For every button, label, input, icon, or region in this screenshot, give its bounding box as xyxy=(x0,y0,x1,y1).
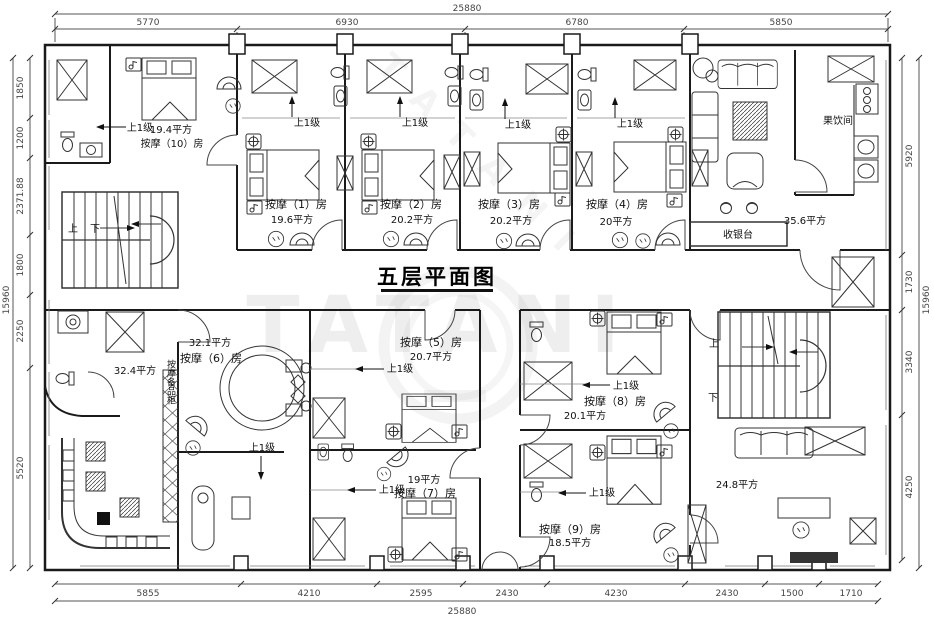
cabinet-label: 按摩备品柜 xyxy=(165,358,176,405)
stairs-left-up-label: 上 xyxy=(68,223,78,235)
closet-icon xyxy=(828,56,874,82)
step-label-room6: 上1级 xyxy=(249,442,275,454)
dim-left-overall: 15960 xyxy=(2,285,12,314)
toilet-icon xyxy=(578,68,596,81)
bed-icon xyxy=(614,142,686,192)
shower-icon xyxy=(313,398,345,438)
room4-area: 20平方 xyxy=(600,215,633,228)
chair-icon xyxy=(290,233,314,245)
sofa-icon xyxy=(735,428,813,458)
dim-left-4: 1800 xyxy=(16,253,26,276)
bench-icon xyxy=(790,552,838,563)
dim-bottom-8: 1710 xyxy=(840,589,863,599)
cashier-label: 收银台 xyxy=(723,228,753,241)
dim-left-5: 2250 xyxy=(16,319,26,342)
stairs-right-down-label: 下 xyxy=(708,393,718,404)
toilet-icon xyxy=(331,66,349,79)
phone-icon xyxy=(721,203,732,214)
dim-top-3: 6780 xyxy=(566,18,589,28)
shower-icon xyxy=(524,444,572,478)
closet-icon xyxy=(850,518,876,544)
desk-icon xyxy=(778,498,830,518)
stool-icon xyxy=(226,99,240,113)
dim-bottom-3: 2595 xyxy=(410,589,433,599)
sofa-icon xyxy=(692,92,718,162)
coffee-table-icon xyxy=(733,102,767,140)
table-icon xyxy=(86,442,105,461)
page-title: 五层平面图 xyxy=(377,265,497,289)
dim-bottom-2: 4210 xyxy=(298,589,321,599)
phone-icon xyxy=(747,203,758,214)
step-label-room8: 上1级 xyxy=(613,380,639,392)
basin-icon xyxy=(578,90,591,110)
closet-icon xyxy=(805,427,865,455)
toilet-icon xyxy=(61,132,74,152)
toilet-icon xyxy=(470,68,488,81)
dim-bottom-7: 1500 xyxy=(781,589,804,599)
room9-area: 18.5平方 xyxy=(549,536,591,549)
shower-icon xyxy=(57,60,87,100)
dim-left-6: 5520 xyxy=(16,456,26,479)
chair-icon xyxy=(186,411,212,436)
stool-icon xyxy=(383,231,398,246)
stool-icon xyxy=(496,233,511,248)
dim-bottom-6: 2430 xyxy=(716,589,739,599)
music-player-icon xyxy=(362,201,377,214)
room7-area: 19平方 xyxy=(408,473,441,486)
stool-icon xyxy=(377,467,391,481)
chair-icon xyxy=(649,397,675,422)
closet-icon xyxy=(692,150,708,186)
room8-name: 按摩（8）房 xyxy=(584,394,646,408)
step-label-room9: 上1级 xyxy=(589,487,615,499)
sofa-icon xyxy=(718,60,777,89)
closet-icon xyxy=(444,155,460,189)
chair-icon xyxy=(649,518,675,543)
bed-icon xyxy=(362,150,434,200)
ceiling-light-icon xyxy=(361,134,376,149)
step-label-room4: 上1级 xyxy=(617,118,643,130)
armchair-icon xyxy=(727,153,763,189)
lounge-area-label: 35.6平方 xyxy=(784,214,826,227)
dim-right-overall: 15960 xyxy=(922,285,932,314)
room9-name: 按摩（9）房 xyxy=(539,522,601,536)
music-player-icon xyxy=(555,193,570,206)
ceiling-light-icon xyxy=(388,547,403,562)
rest-area-label: 24.8平方 xyxy=(716,478,758,491)
dim-top-1: 5770 xyxy=(137,18,160,28)
stool-icon xyxy=(232,497,250,519)
dim-bottom-5: 4230 xyxy=(605,589,628,599)
stairs-right-up-label: 上 xyxy=(709,338,719,350)
room4-name: 按摩（4）房 xyxy=(586,197,648,211)
music-player-icon xyxy=(247,201,262,214)
dim-right-1: 5920 xyxy=(905,144,915,167)
watermark-diagonal-text: TATANI xyxy=(369,46,601,278)
music-player-icon xyxy=(657,445,672,458)
plant-icon xyxy=(693,58,713,78)
bed-icon xyxy=(402,498,456,560)
dim-left-2: 1200 xyxy=(16,126,26,149)
room6-name: 按摩（6）房 xyxy=(180,351,242,365)
massage-table-icon xyxy=(192,486,214,550)
room3-area: 20.2平方 xyxy=(490,214,532,227)
dim-top-2: 6930 xyxy=(336,18,359,28)
ceiling-light-icon xyxy=(386,424,401,439)
music-player-icon xyxy=(657,313,672,326)
stove-icon xyxy=(856,84,878,114)
room5-area: 20.7平方 xyxy=(410,350,452,363)
music-player-icon xyxy=(126,58,141,71)
basin-icon xyxy=(318,444,328,460)
toilet-icon xyxy=(342,444,354,462)
elevator-icon xyxy=(106,312,144,352)
bed-icon xyxy=(142,58,196,120)
stool-icon xyxy=(664,548,678,562)
room1-area: 19.6平方 xyxy=(271,213,313,226)
stairs-left xyxy=(62,192,178,288)
closet-icon xyxy=(688,505,706,563)
dim-right-4: 4250 xyxy=(905,475,915,498)
music-player-icon xyxy=(452,425,467,438)
bed-icon xyxy=(247,150,319,200)
ceiling-light-icon xyxy=(668,127,683,142)
dim-bottom-4: 2430 xyxy=(496,589,519,599)
step-label-room1: 上1级 xyxy=(294,117,320,129)
washer-icon xyxy=(58,311,88,333)
bar-counter xyxy=(62,438,170,548)
stool-icon xyxy=(793,522,809,538)
room10-area: 19.4平方 xyxy=(150,123,192,136)
room2-name: 按摩（2）房 xyxy=(380,197,442,211)
room2-area: 20.2平方 xyxy=(391,213,433,226)
dim-bottom-1: 5855 xyxy=(137,589,160,599)
dim-right-3: 3340 xyxy=(905,350,915,373)
shower-icon xyxy=(526,64,568,94)
step-label-room5: 上1级 xyxy=(387,363,413,375)
music-player-icon xyxy=(667,194,682,207)
shower-icon xyxy=(252,60,297,93)
step-label-room2: 上1级 xyxy=(402,117,428,129)
hall-area-label: 32.4平方 xyxy=(114,364,156,377)
room8-area: 20.1平方 xyxy=(564,409,606,422)
table-icon xyxy=(97,512,110,525)
step-label-room10: 上1级 xyxy=(127,122,153,134)
dim-bottom-overall: 25880 xyxy=(448,607,477,617)
dim-left-1: 1850 xyxy=(16,76,26,99)
closet-icon xyxy=(576,152,592,186)
fruit-room-label: 果饮间 xyxy=(823,114,853,127)
dim-right-2: 1730 xyxy=(905,270,915,293)
dim-left-3: 2371.88 xyxy=(16,177,26,214)
floor-plan-drawing: TATANI TATANI xyxy=(0,0,934,620)
shower-icon xyxy=(634,60,676,90)
shower-icon xyxy=(313,518,345,560)
ceiling-light-icon xyxy=(590,445,605,460)
stool-icon xyxy=(612,232,627,247)
stool-icon xyxy=(636,234,650,248)
floor-plan: TATANI TATANI xyxy=(0,0,934,620)
dim-top-4: 5850 xyxy=(770,18,793,28)
step-label-room7: 上1级 xyxy=(379,484,405,496)
toilet-icon xyxy=(56,372,74,385)
table-icon xyxy=(86,472,105,491)
ceiling-light-icon xyxy=(556,127,571,142)
room5-name: 按摩（5）房 xyxy=(400,335,462,349)
chair-icon xyxy=(404,233,428,245)
dim-top-overall: 25880 xyxy=(453,4,482,14)
elevator-icon xyxy=(832,257,874,307)
room1-name: 按摩（1）房 xyxy=(265,197,327,211)
stool-icon xyxy=(268,231,283,246)
drawing-title: 五层平面图 xyxy=(377,265,497,292)
basin-icon xyxy=(470,90,483,110)
stool-icon xyxy=(186,441,200,455)
step-label-room3: 上1级 xyxy=(505,119,531,131)
table-icon xyxy=(120,498,139,517)
stairs-right xyxy=(718,312,830,418)
room6-area: 32.1平方 xyxy=(189,336,231,349)
room10-name: 按摩（10）房 xyxy=(141,137,204,150)
ceiling-light-icon xyxy=(246,134,261,149)
room3-name: 按摩（3）房 xyxy=(478,197,540,211)
stairs-left-down-label: 下 xyxy=(90,224,100,235)
